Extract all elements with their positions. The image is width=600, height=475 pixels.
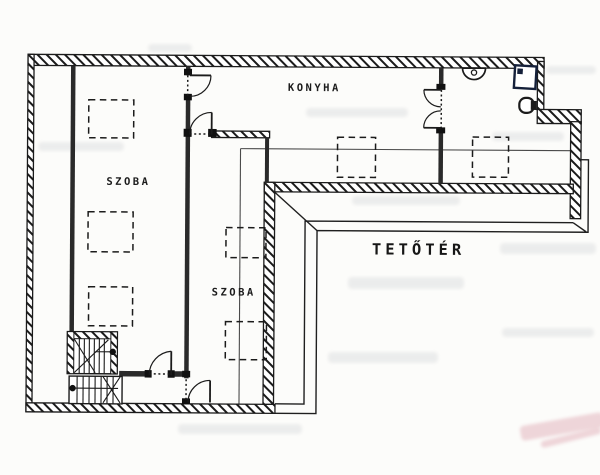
- wall-room-middle-top: [212, 131, 270, 138]
- floorplan-drawing: SZOBA KONYHA SZOBA TETŐTÉR: [0, 0, 600, 475]
- attic-boundary-line: [272, 158, 589, 415]
- room-label-left: SZOBA: [106, 176, 150, 188]
- shower-symbol: [514, 65, 537, 89]
- partition-walls: [69, 66, 443, 380]
- kitchen-label: KONYHA: [288, 82, 341, 94]
- wall-left: [26, 54, 34, 411]
- furniture-outline: [472, 137, 508, 177]
- wall-bottom: [26, 403, 275, 414]
- floorplan-scan: SZOBA KONYHA SZOBA TETŐTÉR: [0, 0, 600, 475]
- wall-attic-horizontal: [264, 182, 573, 193]
- room-label-middle: SZOBA: [212, 286, 256, 298]
- furniture-outline: [226, 228, 266, 258]
- wall-right-upper: [537, 61, 544, 110]
- floorplan-linework: [0, 0, 600, 475]
- wall-right-lower: [570, 122, 581, 219]
- sink-symbol: [462, 68, 485, 80]
- furniture-outline: [225, 322, 266, 360]
- furniture-outline: [88, 212, 133, 252]
- door-swing-double-kitchen-bathroom: [424, 90, 442, 128]
- door-swing-roomleft-kitchen: [188, 75, 211, 96]
- wall-top: [28, 54, 544, 68]
- attic-label: TETŐTÉR: [372, 240, 465, 259]
- furniture-outlines: [87, 100, 509, 362]
- furniture-outline: [89, 100, 134, 138]
- wall-attic-vertical: [263, 182, 275, 404]
- toilet-symbol: [519, 98, 537, 113]
- stairs-symbol: [67, 332, 122, 404]
- furniture-outline: [88, 287, 132, 326]
- furniture-outline: [337, 137, 375, 177]
